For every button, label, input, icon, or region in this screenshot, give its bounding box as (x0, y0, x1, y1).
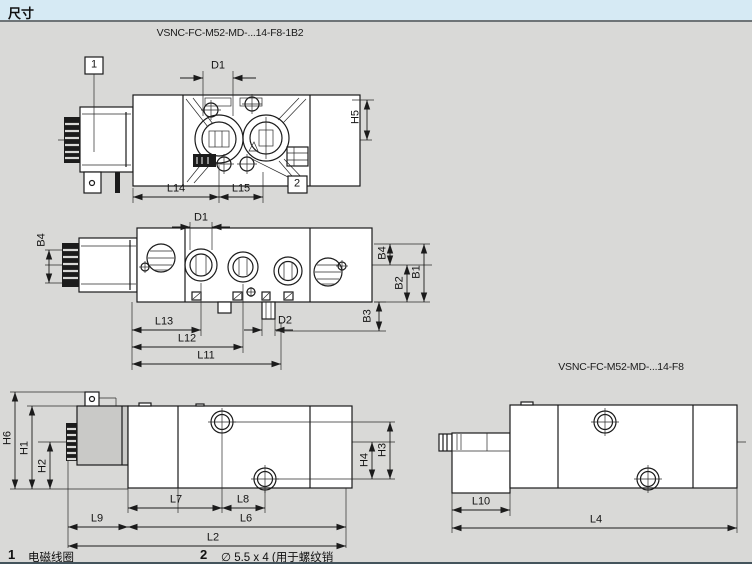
dim-label-b4-left: B4 (37, 233, 48, 246)
dim-label-d1-front: D1 (194, 213, 208, 224)
dim-label-h5: H5 (351, 110, 362, 124)
dimension-drawing-canvas (0, 0, 752, 567)
dim-label-l14: L14 (167, 184, 185, 195)
valve-body-f8 (510, 405, 737, 488)
callout-1: 1 (91, 60, 97, 71)
top-view-drawing (58, 57, 374, 203)
dim-label-l6: L6 (240, 514, 252, 525)
dim-label-h1: H1 (20, 441, 31, 455)
dim-label-h6: H6 (3, 431, 14, 445)
dim-label-l11: L11 (197, 351, 215, 362)
drawing-title-f8: VSNC-FC-M52-MD-...14-F8 (558, 362, 684, 373)
dim-label-b4-right: B4 (378, 246, 389, 259)
dim-label-h3: H3 (378, 443, 389, 457)
dim-label-l13: L13 (155, 317, 173, 328)
dim-label-l7: L7 (170, 495, 182, 506)
plug (84, 172, 101, 193)
dim-label-b1: B1 (412, 265, 423, 278)
dim-label-b3: B3 (363, 309, 374, 322)
dim-label-l10: L10 (472, 497, 490, 508)
dim-label-d1-top: D1 (211, 61, 225, 72)
dim-label-l8: L8 (237, 495, 249, 506)
dim-label-l15: L15 (232, 184, 250, 195)
front-view-drawing (45, 222, 432, 370)
drawing-title-1b2: VSNC-FC-M52-MD-...14-F8-1B2 (157, 28, 304, 39)
dim-label-h4: H4 (360, 453, 371, 467)
valve-body-side (128, 406, 352, 488)
legend-2-number: 2 (200, 547, 207, 562)
plug-side (85, 392, 99, 407)
dim-label-d2: D2 (278, 316, 292, 327)
solenoid-coil-side (77, 406, 128, 465)
dim-label-l4: L4 (590, 515, 602, 526)
dim-label-l2: L2 (207, 533, 219, 544)
threaded-stub (439, 434, 452, 451)
dim-label-h2: H2 (38, 459, 49, 473)
dim-label-l12: L12 (178, 334, 196, 345)
callout-2: 2 (294, 179, 300, 190)
dim-label-b2: B2 (395, 276, 406, 289)
dim-label-l9: L9 (91, 514, 103, 525)
side-view-drawing (10, 392, 395, 548)
solenoid-coil (80, 107, 133, 172)
dimensions-page: 尺寸 (0, 0, 752, 567)
page-bottom-edge (0, 562, 752, 567)
legend-1-number: 1 (8, 547, 15, 562)
